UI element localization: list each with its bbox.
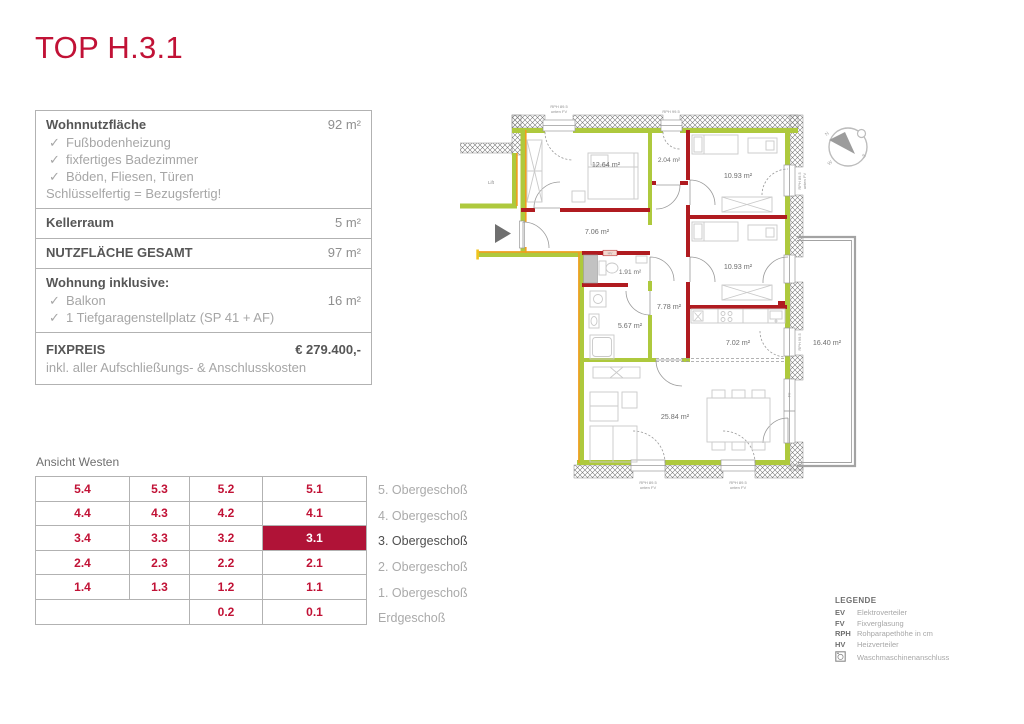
wohnnutzflaeche-label: Wohnnutzfläche — [46, 115, 146, 134]
unit-cell: 2.2 — [190, 550, 263, 575]
page-title: TOP H.3.1 — [35, 30, 183, 66]
unit-grid: 5.4 5.3 5.2 5.1 4.4 4.3 4.2 4.1 3.4 3.3 … — [35, 476, 367, 625]
unit-cell: 3.2 — [190, 526, 263, 551]
section-fixpreis: FIXPREIS € 279.400,- inkl. aller Aufschl… — [36, 333, 371, 384]
floor-label: 1. Obergeschoß — [378, 580, 468, 606]
gesamt-value: 97 m² — [328, 245, 361, 260]
check-icon: ✓ — [46, 134, 66, 151]
room-label-kitchen: 7.02 m² — [726, 338, 751, 347]
floor-plan: HV — [460, 95, 880, 495]
unit-cell: 1.3 — [130, 575, 190, 600]
info-table: Wohnnutzfläche 92 m² ✓Fußbodenheizung ✓f… — [35, 110, 372, 385]
hv-label: HV — [608, 252, 613, 256]
room-label-bedroom2: 10.93 m² — [724, 171, 753, 180]
unit-cell: 5.4 — [36, 477, 130, 502]
legend-label: Fixverglasung — [857, 620, 904, 629]
grid-row: 2.4 2.3 2.2 2.1 — [36, 550, 367, 575]
check-icon: ✓ — [46, 292, 66, 309]
floor-label: 4. Obergeschoß — [378, 503, 468, 529]
section-inklusive: Wohnung inklusive: ✓ Balkon 16 m² ✓ 1 Ti… — [36, 269, 371, 333]
unit-cell: 1.4 — [36, 575, 130, 600]
unit-cell: 3.4 — [36, 526, 130, 551]
rph-label: unten FV — [640, 485, 657, 490]
section-kellerraum: Kellerraum 5 m² — [36, 209, 371, 239]
legend: LEGENDE EV Elektroverteiler FV Fixvergla… — [835, 596, 949, 666]
lift-label: Lift — [488, 180, 495, 185]
red-walls: HV — [521, 130, 787, 358]
grid-row: 3.4 3.3 3.2 3.1 — [36, 526, 367, 551]
fixpreis-value: € 279.400,- — [295, 342, 361, 357]
unit-cell: 4.2 — [190, 501, 263, 526]
unit-cell: 1.2 — [190, 575, 263, 600]
legend-label: Waschmaschinenanschluss — [857, 654, 949, 663]
rph-label: RPH 99.5 — [797, 333, 802, 351]
unit-cell-empty — [36, 599, 190, 624]
ready-note: Schlüsselfertig = Bezugsfertig! — [46, 185, 361, 202]
feature-item: ✓Fußbodenheizung — [46, 134, 361, 151]
rph-label: RPH 99.5 — [662, 109, 680, 114]
grid-row: 5.4 5.3 5.2 5.1 — [36, 477, 367, 502]
compass-w: W — [827, 159, 835, 167]
windows — [520, 120, 796, 471]
legend-label: Rohparapethöhe in cm — [857, 630, 933, 639]
unit-cell: 1.1 — [263, 575, 367, 600]
legend-title: LEGENDE — [835, 596, 949, 605]
unit-cell: 4.3 — [130, 501, 190, 526]
exterior-walls — [460, 115, 803, 478]
compass-n: N — [824, 131, 831, 138]
fixpreis-label: FIXPREIS — [46, 340, 105, 359]
rph-label: unten FV — [551, 109, 568, 114]
room-label-corridor: 7.78 m² — [657, 302, 682, 311]
feature-label: Fußbodenheizung — [66, 134, 171, 151]
check-icon: ✓ — [46, 309, 66, 326]
rph-label: unten FV — [730, 485, 747, 490]
unit-cell: 5.3 — [130, 477, 190, 502]
section-wohnnutzflaeche: Wohnnutzfläche 92 m² ✓Fußbodenheizung ✓f… — [36, 111, 371, 209]
floor-label: 5. Obergeschoß — [378, 477, 468, 503]
feature-item: ✓Böden, Fliesen, Türen — [46, 168, 361, 185]
unit-cell: 2.3 — [130, 550, 190, 575]
section-gesamt: NUTZFLÄCHE GESAMT 97 m² — [36, 239, 371, 269]
plan-annotations: RPH 89.5 unten FV RPH 99.5 RPH 89.5 unte… — [488, 104, 807, 490]
room-label-storage: 2.04 m² — [658, 157, 681, 164]
fv-label: FV — [788, 392, 792, 397]
inklusive-item-label: Balkon — [66, 292, 328, 309]
legend-entry: RPH Rohparapethöhe in cm — [835, 630, 949, 639]
room-label-bedroom3: 10.93 m² — [724, 262, 753, 271]
legend-entry: EV Elektroverteiler — [835, 609, 949, 618]
page: { "title": "TOP H.3.1", "info": { "check… — [0, 0, 1024, 724]
feature-label: fixfertiges Badezimmer — [66, 151, 198, 168]
legend-key: FV — [835, 620, 857, 629]
wohnnutzflaeche-value: 92 m² — [328, 117, 361, 132]
green-walls — [460, 130, 798, 465]
grid-row: 0.2 0.1 — [36, 599, 367, 624]
check-icon: ✓ — [46, 168, 66, 185]
unit-cell: 0.2 — [190, 599, 263, 624]
unit-cell: 5.2 — [190, 477, 263, 502]
inklusive-item-value: 16 m² — [328, 292, 361, 309]
rph-label: unten FV — [802, 173, 807, 190]
balcony-outline — [797, 237, 855, 466]
room-label-bedroom1: 12.64 m² — [592, 160, 621, 169]
unit-cell: 0.1 — [263, 599, 367, 624]
legend-key: RPH — [835, 630, 857, 639]
floor-labels: 5. Obergeschoß 4. Obergeschoß 3. Oberges… — [378, 477, 468, 631]
legend-label: Elektroverteiler — [857, 609, 907, 618]
unit-cell: 4.4 — [36, 501, 130, 526]
room-label-bath: 5.67 m² — [618, 321, 643, 330]
kellerraum-value: 5 m² — [335, 215, 361, 230]
legend-key: EV — [835, 609, 857, 618]
unit-cell: 2.4 — [36, 550, 130, 575]
fixpreis-note: inkl. aller Aufschließungs- & Anschlussk… — [46, 359, 361, 376]
inklusive-item-label: 1 Tiefgaragenstellplatz (SP 41 + AF) — [66, 309, 274, 326]
inklusive-label: Wohnung inklusive: — [46, 273, 361, 292]
washing-machine-icon — [835, 651, 857, 665]
feature-label: Böden, Fliesen, Türen — [66, 168, 194, 185]
check-icon: ✓ — [46, 151, 66, 168]
legend-entry: FV Fixverglasung — [835, 620, 949, 629]
gesamt-label: NUTZFLÄCHE GESAMT — [46, 243, 193, 262]
room-label-hall: 7.06 m² — [585, 227, 610, 236]
unit-cell: 4.1 — [263, 501, 367, 526]
unit-cell: 2.1 — [263, 550, 367, 575]
grid-title: Ansicht Westen — [36, 455, 119, 469]
legend-label: Heizverteiler — [857, 641, 899, 650]
compass-icon: N W S — [824, 128, 868, 167]
compass-s: S — [861, 152, 868, 159]
unit-cell: 5.1 — [263, 477, 367, 502]
unit-cell-highlighted: 3.1 — [263, 526, 367, 551]
inklusive-item: ✓ Balkon 16 m² — [46, 292, 361, 309]
legend-key: HV — [835, 641, 857, 650]
inklusive-item: ✓ 1 Tiefgaragenstellplatz (SP 41 + AF) — [46, 309, 361, 326]
grid-row: 4.4 4.3 4.2 4.1 — [36, 501, 367, 526]
legend-entry: Waschmaschinenanschluss — [835, 652, 949, 664]
room-label-wc: 1.91 m² — [619, 269, 642, 276]
legend-entry: HV Heizverteiler — [835, 641, 949, 650]
floor-label: 2. Obergeschoß — [378, 554, 468, 580]
entrance-arrow-icon — [495, 224, 511, 243]
grid-row: 1.4 1.3 1.2 1.1 — [36, 575, 367, 600]
feature-item: ✓fixfertiges Badezimmer — [46, 151, 361, 168]
room-label-living: 25.84 m² — [661, 412, 690, 421]
kellerraum-label: Kellerraum — [46, 213, 114, 232]
floor-label: Erdgeschoß — [378, 605, 468, 631]
unit-cell: 3.3 — [130, 526, 190, 551]
floor-label-active: 3. Obergeschoß — [378, 528, 468, 554]
room-label-balcony: 16.40 m² — [813, 338, 842, 347]
